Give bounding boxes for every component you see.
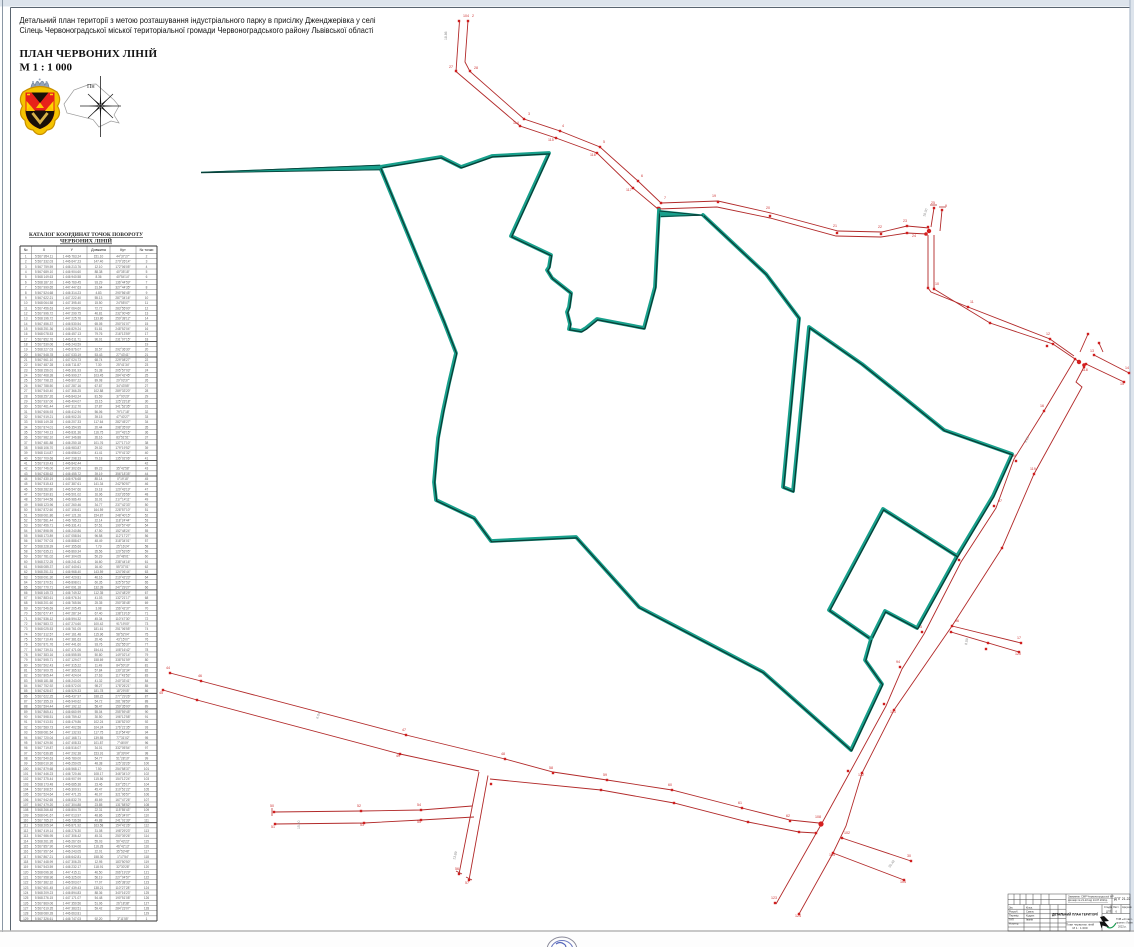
svg-text:5 567 530.81: 5 567 530.81 [35, 493, 54, 497]
svg-text:167°47'26": 167°47'26" [115, 798, 130, 802]
svg-text:1 446 898.01: 1 446 898.01 [63, 581, 82, 585]
svg-text:196°12'58": 196°12'58" [115, 715, 130, 719]
svg-text:1 446 832.79: 1 446 832.79 [63, 798, 82, 802]
svg-text:58: 58 [549, 766, 553, 770]
svg-text:1 447 132.93: 1 447 132.93 [63, 731, 82, 735]
svg-text:106: 106 [144, 793, 149, 797]
svg-text:5 567 919.21: 5 567 919.21 [35, 415, 54, 419]
svg-text:58.47: 58.47 [95, 705, 103, 709]
svg-text:5 567 871.76: 5 567 871.76 [35, 643, 54, 647]
svg-text:149°02'14": 149°02'14" [115, 653, 130, 657]
svg-text:124°48'29": 124°48'29" [115, 591, 130, 595]
svg-text:1 446 759.42: 1 446 759.42 [63, 715, 82, 719]
svg-text:1 447 306.42: 1 447 306.42 [63, 834, 82, 838]
svg-text:152°48'24": 152°48'24" [115, 529, 130, 533]
svg-text:108: 108 [144, 803, 149, 807]
svg-text:42: 42 [145, 462, 149, 466]
svg-text:86: 86 [145, 689, 149, 693]
svg-text:96: 96 [145, 741, 149, 745]
svg-text:99: 99 [145, 756, 149, 760]
svg-text:112°17'27": 112°17'27" [116, 534, 131, 538]
svg-text:5 567 677.47: 5 567 677.47 [35, 612, 54, 616]
svg-text:86: 86 [24, 694, 28, 698]
svg-text:114: 114 [144, 834, 149, 838]
svg-text:72: 72 [145, 617, 149, 621]
svg-text:1 447 383.51: 1 447 383.51 [63, 907, 82, 911]
svg-text:1 446 455.72: 1 446 455.72 [63, 472, 82, 476]
svg-text:279°26'14": 279°26'14" [115, 260, 130, 264]
svg-text:1 446 331.41: 1 446 331.41 [63, 524, 82, 528]
svg-text:18°29'05": 18°29'05" [116, 689, 129, 693]
svg-text:255°59'45": 255°59'45" [115, 710, 130, 714]
svg-text:1 447 292.38: 1 447 292.38 [63, 751, 82, 755]
svg-text:40: 40 [145, 451, 149, 455]
svg-text:37.87: 37.87 [95, 405, 103, 409]
svg-text:12: 12 [24, 311, 28, 315]
svg-text:242°50'57": 242°50'57" [115, 482, 130, 486]
svg-text:1 447 439.43: 1 447 439.43 [63, 886, 82, 890]
svg-text:5 567 461.44: 5 567 461.44 [35, 405, 54, 409]
svg-text:1 447 129.07: 1 447 129.07 [63, 658, 82, 662]
svg-text:Кільк.: Кільк. [1026, 905, 1033, 909]
svg-text:93: 93 [145, 725, 149, 729]
svg-text:17: 17 [24, 337, 28, 341]
svg-text:52: 52 [145, 513, 149, 517]
svg-text:5 567 910.43: 5 567 910.43 [35, 462, 54, 466]
svg-text:115: 115 [548, 138, 554, 142]
svg-text:5 567 852.76: 5 567 852.76 [35, 337, 54, 341]
svg-text:127°17'10": 127°17'10" [115, 441, 130, 445]
svg-text:250°39'26": 250°39'26" [115, 834, 130, 838]
svg-text:46: 46 [145, 482, 149, 486]
svg-text:1 446 555.55: 1 446 555.55 [63, 653, 82, 657]
svg-text:20: 20 [145, 348, 149, 352]
svg-text:141.34: 141.34 [94, 482, 104, 486]
svg-text:118: 118 [23, 860, 28, 864]
svg-text:1 446 457.13: 1 446 457.13 [63, 332, 82, 336]
svg-text:113: 113 [144, 829, 149, 833]
svg-text:45: 45 [24, 482, 28, 486]
svg-text:9: 9 [945, 204, 947, 208]
svg-text:46.50: 46.50 [95, 870, 103, 874]
svg-text:1 447 171.07: 1 447 171.07 [63, 896, 82, 900]
svg-text:6: 6 [25, 280, 27, 284]
svg-text:55.04: 55.04 [95, 710, 103, 714]
svg-text:129°53'05": 129°53'05" [115, 549, 130, 553]
svg-text:5 567 746.00: 5 567 746.00 [35, 467, 54, 471]
svg-text:117°43'53": 117°43'53" [116, 674, 131, 678]
svg-text:1 446 276.30: 1 446 276.30 [63, 829, 82, 833]
svg-text:5 568 201.60: 5 568 201.60 [35, 601, 54, 605]
svg-text:5 568 149.28: 5 568 149.28 [35, 420, 54, 424]
svg-text:1 447 024.73: 1 447 024.73 [63, 358, 82, 362]
svg-text:122: 122 [144, 875, 149, 879]
svg-text:5 567 869.06: 5 567 869.06 [35, 901, 54, 905]
svg-text:84: 84 [145, 679, 149, 683]
svg-text:7: 7 [146, 280, 148, 284]
svg-text:32°30'28": 32°30'28" [116, 865, 129, 869]
svg-text:5 567 429.50: 5 567 429.50 [35, 741, 54, 745]
svg-text:14: 14 [1125, 366, 1129, 370]
svg-text:5 567 382.32: 5 567 382.32 [35, 881, 54, 885]
svg-text:7.79: 7.79 [95, 544, 101, 548]
svg-text:8: 8 [25, 291, 27, 295]
svg-text:5 567 898.95: 5 567 898.95 [35, 529, 54, 533]
svg-text:95: 95 [24, 741, 28, 745]
svg-text:59.42: 59.42 [95, 907, 103, 911]
svg-text:81.59: 81.59 [95, 394, 103, 398]
svg-text:4: 4 [146, 265, 148, 269]
svg-text:46.07: 46.07 [95, 793, 103, 797]
svg-text:36: 36 [24, 436, 28, 440]
svg-text:1 447 287.16: 1 447 287.16 [63, 384, 82, 388]
svg-text:108: 108 [815, 815, 821, 819]
svg-text:1 446 572.00: 1 446 572.00 [63, 684, 82, 688]
svg-text:5 567 759.59: 5 567 759.59 [35, 265, 54, 269]
svg-text:247°29'27": 247°29'27" [115, 586, 130, 590]
svg-text:123: 123 [144, 881, 149, 885]
svg-text:1 446 829.24: 1 446 829.24 [63, 327, 82, 331]
svg-text:102: 102 [844, 831, 850, 835]
svg-text:1 446 749.32: 1 446 749.32 [63, 591, 82, 595]
svg-text:5 567 719.87: 5 567 719.87 [35, 746, 54, 750]
svg-text:5 568 096.36: 5 568 096.36 [35, 870, 54, 874]
svg-text:136°52'00": 136°52'00" [115, 720, 130, 724]
svg-text:66: 66 [24, 591, 28, 595]
svg-text:1 446 843.24: 1 446 843.24 [63, 394, 82, 398]
svg-text:84°50'19": 84°50'19" [116, 663, 129, 667]
svg-text:5 567 937.00: 5 567 937.00 [35, 399, 54, 403]
svg-text:77: 77 [145, 643, 149, 647]
svg-text:3: 3 [146, 260, 148, 264]
svg-text:51: 51 [24, 513, 28, 517]
svg-text:63: 63 [145, 570, 149, 574]
svg-text:5 568 282.80: 5 568 282.80 [35, 487, 54, 491]
svg-text:158.30: 158.30 [94, 855, 104, 859]
svg-text:5 567 865.41: 5 567 865.41 [35, 710, 54, 714]
svg-text:5 567 797.03: 5 567 797.03 [35, 539, 54, 543]
svg-text:118.91: 118.91 [94, 865, 104, 869]
svg-text:5 568 251.31: 5 568 251.31 [35, 570, 54, 574]
svg-text:41.41: 41.41 [95, 451, 103, 455]
svg-text:116.28: 116.28 [94, 844, 104, 848]
svg-text:125: 125 [144, 891, 149, 895]
svg-text:5 567 308.57: 5 567 308.57 [35, 788, 54, 792]
svg-text:1 446 267.69: 1 446 267.69 [63, 839, 82, 843]
svg-text:289°33'20": 289°33'20" [115, 389, 130, 393]
svg-text:1 447 064.60: 1 447 064.60 [63, 306, 82, 310]
svg-text:103.45: 103.45 [94, 374, 104, 378]
svg-text:108.17: 108.17 [94, 772, 104, 776]
svg-text:44: 44 [166, 666, 170, 670]
svg-text:1 446 763.24: 1 446 763.24 [63, 255, 82, 259]
svg-text:266°19'29": 266°19'29" [115, 870, 130, 874]
svg-text:55: 55 [145, 529, 149, 533]
svg-text:52: 52 [357, 804, 361, 808]
svg-text:1 446 685.38: 1 446 685.38 [63, 782, 82, 786]
svg-text:113: 113 [23, 834, 28, 838]
svg-text:28: 28 [145, 389, 149, 393]
svg-text:5 567 456.71: 5 567 456.71 [35, 524, 54, 528]
svg-text:М 1 : 1 000: М 1 : 1 000 [1072, 926, 1087, 930]
svg-text:15: 15 [145, 322, 149, 326]
svg-text:20.44: 20.44 [95, 425, 103, 429]
svg-text:1 447 381.63: 1 447 381.63 [63, 637, 82, 641]
svg-text:85: 85 [145, 684, 149, 688]
svg-text:88: 88 [145, 700, 149, 704]
svg-text:103: 103 [829, 853, 835, 857]
svg-text:181.61: 181.61 [94, 627, 104, 631]
svg-text:62: 62 [786, 814, 790, 818]
svg-text:5 567 636.85: 5 567 636.85 [35, 751, 54, 755]
svg-text:50.80: 50.80 [95, 653, 103, 657]
svg-text:2: 2 [25, 260, 27, 264]
svg-text:277°29'26": 277°29'26" [115, 694, 130, 698]
svg-text:79.76: 79.76 [95, 332, 103, 336]
svg-text:ДПТ: ДПТ [1106, 910, 1112, 914]
svg-text:67: 67 [24, 596, 28, 600]
svg-text:30: 30 [145, 399, 149, 403]
svg-text:5 568 085.37: 5 568 085.37 [35, 565, 54, 569]
svg-text:13: 13 [1090, 349, 1094, 353]
svg-text:5 568 080.28: 5 568 080.28 [35, 912, 54, 916]
svg-text:22: 22 [24, 363, 28, 367]
svg-text:5 567 999.65: 5 567 999.65 [35, 286, 54, 290]
svg-text:1 446 660.99: 1 446 660.99 [63, 710, 82, 714]
svg-text:56.06: 56.06 [95, 410, 103, 414]
svg-text:115.56: 115.56 [94, 777, 104, 781]
svg-text:83: 83 [24, 679, 28, 683]
svg-text:Аркушів: Аркушів [1122, 905, 1132, 909]
svg-text:70: 70 [24, 612, 28, 616]
svg-text:7°46'09": 7°46'09" [117, 741, 129, 745]
svg-text:51.06: 51.06 [95, 901, 103, 905]
svg-text:35: 35 [24, 430, 28, 434]
svg-text:1 447 441.60: 1 447 441.60 [63, 643, 82, 647]
svg-text:107: 107 [144, 798, 149, 802]
svg-text:54.48: 54.48 [95, 896, 103, 900]
svg-text:321°06'57": 321°06'57" [115, 793, 130, 797]
svg-text:Замовник: СМР Червоноградської: Замовник: СМР Червоноградської МР [1068, 895, 1114, 899]
svg-text:3: 3 [25, 265, 27, 269]
svg-text:1 446 904.60: 1 446 904.60 [63, 270, 82, 274]
svg-text:Пн: Пн [87, 84, 95, 90]
svg-text:13: 13 [145, 311, 149, 315]
svg-text:54.72: 54.72 [95, 700, 103, 704]
svg-text:1 446 789.00: 1 446 789.00 [63, 756, 82, 760]
svg-text:127: 127 [144, 901, 149, 905]
svg-text:356°18'35": 356°18'35" [115, 472, 130, 476]
svg-text:76: 76 [24, 643, 28, 647]
svg-text:1 447 106.61: 1 447 106.61 [63, 508, 82, 512]
svg-text:80: 80 [145, 658, 149, 662]
svg-text:237°42'33": 237°42'33" [115, 503, 130, 507]
svg-text:104: 104 [144, 782, 149, 786]
svg-text:231°07'15": 231°07'15" [115, 337, 130, 341]
svg-text:318°34'01": 318°34'01" [115, 539, 130, 543]
svg-text:48: 48 [145, 493, 149, 497]
svg-text:1 447 408.33: 1 447 408.33 [63, 741, 82, 745]
svg-text:5 567 524.64: 5 567 524.64 [35, 793, 54, 797]
svg-text:35.56: 35.56 [95, 549, 103, 553]
svg-text:5 567 622.21: 5 567 622.21 [35, 296, 54, 300]
svg-text:20: 20 [24, 353, 28, 357]
svg-text:3°11'55": 3°11'55" [117, 917, 128, 921]
svg-text:16.91: 16.91 [95, 498, 103, 502]
svg-text:127: 127 [23, 907, 28, 911]
svg-text:1 446 785.23: 1 446 785.23 [63, 518, 82, 522]
svg-text:5 567 958.96: 5 567 958.96 [35, 875, 54, 879]
svg-text:135°34'07": 135°34'07" [115, 813, 130, 817]
svg-text:122: 122 [858, 773, 864, 777]
svg-text:1 447 033.19: 1 447 033.19 [63, 353, 82, 357]
svg-text:56: 56 [455, 867, 459, 871]
svg-text:5 567 383.16: 5 567 383.16 [35, 653, 54, 657]
svg-text:5 567 986.95: 5 567 986.95 [35, 834, 54, 838]
svg-text:5 568 276.15: 5 568 276.15 [35, 896, 54, 900]
svg-text:1 446 594.32: 1 446 594.32 [63, 617, 82, 621]
svg-text:120: 120 [1015, 652, 1021, 656]
svg-text:117.75: 117.75 [94, 731, 104, 735]
svg-text:5 568 227.03: 5 568 227.03 [35, 348, 54, 352]
svg-text:16.57: 16.57 [95, 348, 103, 352]
svg-text:1 446 976.68: 1 446 976.68 [63, 477, 82, 481]
svg-text:91°19'00": 91°19'00" [116, 622, 129, 626]
svg-text:5 567 430.19: 5 567 430.19 [35, 477, 54, 481]
svg-text:19: 19 [24, 348, 28, 352]
svg-text:55.13: 55.13 [95, 296, 103, 300]
svg-text:79: 79 [24, 658, 28, 662]
svg-text:40°35'18": 40°35'18" [116, 270, 129, 274]
svg-text:1 446 243.00: 1 446 243.00 [63, 679, 82, 683]
svg-text:1 447 304.05: 1 447 304.05 [63, 555, 82, 559]
svg-text:91: 91 [24, 720, 28, 724]
svg-text:66: 66 [145, 586, 149, 590]
svg-text:33: 33 [145, 415, 149, 419]
svg-text:9: 9 [146, 291, 148, 295]
svg-text:62: 62 [145, 565, 149, 569]
svg-text:5 567 982.10: 5 567 982.10 [35, 436, 54, 440]
svg-text:5 567 638.62: 5 567 638.62 [35, 472, 54, 476]
svg-text:92: 92 [145, 720, 149, 724]
svg-text:39: 39 [145, 446, 149, 450]
svg-text:25°41'34": 25°41'34" [116, 363, 129, 367]
svg-text:5 567 867.21: 5 567 867.21 [35, 855, 54, 859]
svg-text:5 567 479.20: 5 567 479.20 [35, 803, 54, 807]
svg-text:35°53'48": 35°53'48" [116, 850, 129, 854]
svg-text:1 446 530.54: 1 446 530.54 [63, 322, 82, 326]
svg-text:1 447 387.61: 1 447 387.61 [63, 482, 82, 486]
svg-text:104.24: 104.24 [94, 725, 104, 729]
svg-text:Детальний план території з мет: Детальний план території з метою розташу… [20, 15, 376, 25]
svg-text:1 446 765.56: 1 446 765.56 [63, 601, 82, 605]
svg-text:125°33'26": 125°33'26" [115, 762, 130, 766]
svg-text:121: 121 [890, 710, 896, 714]
svg-text:5 567 913.51: 5 567 913.51 [35, 720, 54, 724]
svg-text:59: 59 [24, 555, 28, 559]
svg-text:57: 57 [145, 539, 149, 543]
svg-text:138.21: 138.21 [94, 886, 104, 890]
svg-text:56: 56 [24, 539, 28, 543]
svg-text:5 567 548.78: 5 567 548.78 [35, 353, 54, 357]
svg-text:21: 21 [833, 224, 837, 228]
svg-text:75: 75 [145, 632, 149, 636]
svg-text:89.23: 89.23 [95, 467, 103, 471]
svg-text:35°42'58": 35°42'58" [116, 467, 129, 471]
svg-text:34.01: 34.01 [95, 746, 103, 750]
svg-text:48: 48 [501, 752, 505, 756]
svg-text:51: 51 [145, 508, 149, 512]
svg-text:1 447 260.46: 1 447 260.46 [63, 503, 82, 507]
svg-text:29: 29 [145, 394, 149, 398]
svg-text:7: 7 [664, 196, 666, 200]
svg-text:188.22: 188.22 [94, 694, 104, 698]
svg-text:325°57'53": 325°57'53" [115, 581, 130, 585]
svg-text:43: 43 [145, 467, 149, 471]
svg-text:259°38'12": 259°38'12" [115, 317, 130, 321]
svg-text:27: 27 [449, 65, 453, 69]
svg-text:101: 101 [144, 767, 149, 771]
svg-text:123: 123 [23, 886, 28, 890]
svg-text:116: 116 [590, 153, 596, 157]
svg-text:1 446 213.76: 1 446 213.76 [63, 265, 82, 269]
svg-text:1 446 807.22: 1 446 807.22 [63, 379, 82, 383]
svg-text:1 446 207.33: 1 446 207.33 [63, 420, 82, 424]
svg-text:60: 60 [24, 560, 28, 564]
svg-text:104: 104 [900, 880, 906, 884]
svg-text:67: 67 [145, 591, 149, 595]
svg-text:1 446 999.27: 1 446 999.27 [63, 374, 82, 378]
svg-text:41.03: 41.03 [95, 596, 103, 600]
svg-text:19: 19 [145, 343, 149, 347]
svg-text:1 447 447.63: 1 447 447.63 [63, 286, 82, 290]
svg-text:114: 114 [23, 839, 28, 843]
svg-text:60.35: 60.35 [95, 581, 103, 585]
svg-text:183°50'50": 183°50'50" [115, 860, 130, 864]
svg-text:1 446 391.93: 1 446 391.93 [63, 368, 82, 372]
svg-text:5 568 091.30: 5 568 091.30 [35, 575, 54, 579]
svg-text:1 446 934.06: 1 446 934.06 [63, 844, 82, 848]
svg-text:1 446 503.07: 1 446 503.07 [63, 881, 82, 885]
svg-text:1 446 940.58: 1 446 940.58 [63, 275, 82, 279]
svg-text:31: 31 [145, 405, 149, 409]
svg-text:7: 7 [25, 286, 27, 290]
svg-text:11: 11 [24, 306, 28, 310]
svg-text:79°17'18": 79°17'18" [116, 410, 129, 414]
svg-text:1 447 299.75: 1 447 299.75 [63, 311, 82, 315]
svg-text:7.30: 7.30 [95, 363, 101, 367]
svg-text:284°42'45": 284°42'45" [115, 374, 130, 378]
svg-text:228°57'10": 228°57'10" [115, 508, 130, 512]
svg-text:10: 10 [24, 301, 28, 305]
svg-text:110°27'28": 110°27'28" [116, 886, 131, 890]
svg-text:34: 34 [145, 420, 149, 424]
svg-text:105: 105 [144, 788, 149, 792]
svg-text:281°08'59": 281°08'59" [115, 700, 130, 704]
svg-text:5 567 543.59: 5 567 543.59 [35, 865, 54, 869]
svg-text:1 447 350.56: 1 447 350.56 [63, 901, 82, 905]
svg-text:94: 94 [24, 736, 28, 740]
svg-text:5 568 196.72: 5 568 196.72 [35, 317, 54, 321]
svg-text:5 567 481.88: 5 567 481.88 [35, 441, 54, 445]
svg-text:9: 9 [25, 296, 27, 300]
svg-text:116: 116 [23, 850, 28, 854]
svg-text:94: 94 [896, 660, 900, 664]
svg-text:101: 101 [23, 772, 28, 776]
svg-text:156°42'37": 156°42'37" [115, 606, 130, 610]
svg-text:250°01'07": 250°01'07" [115, 322, 130, 326]
svg-text:89: 89 [24, 710, 28, 714]
